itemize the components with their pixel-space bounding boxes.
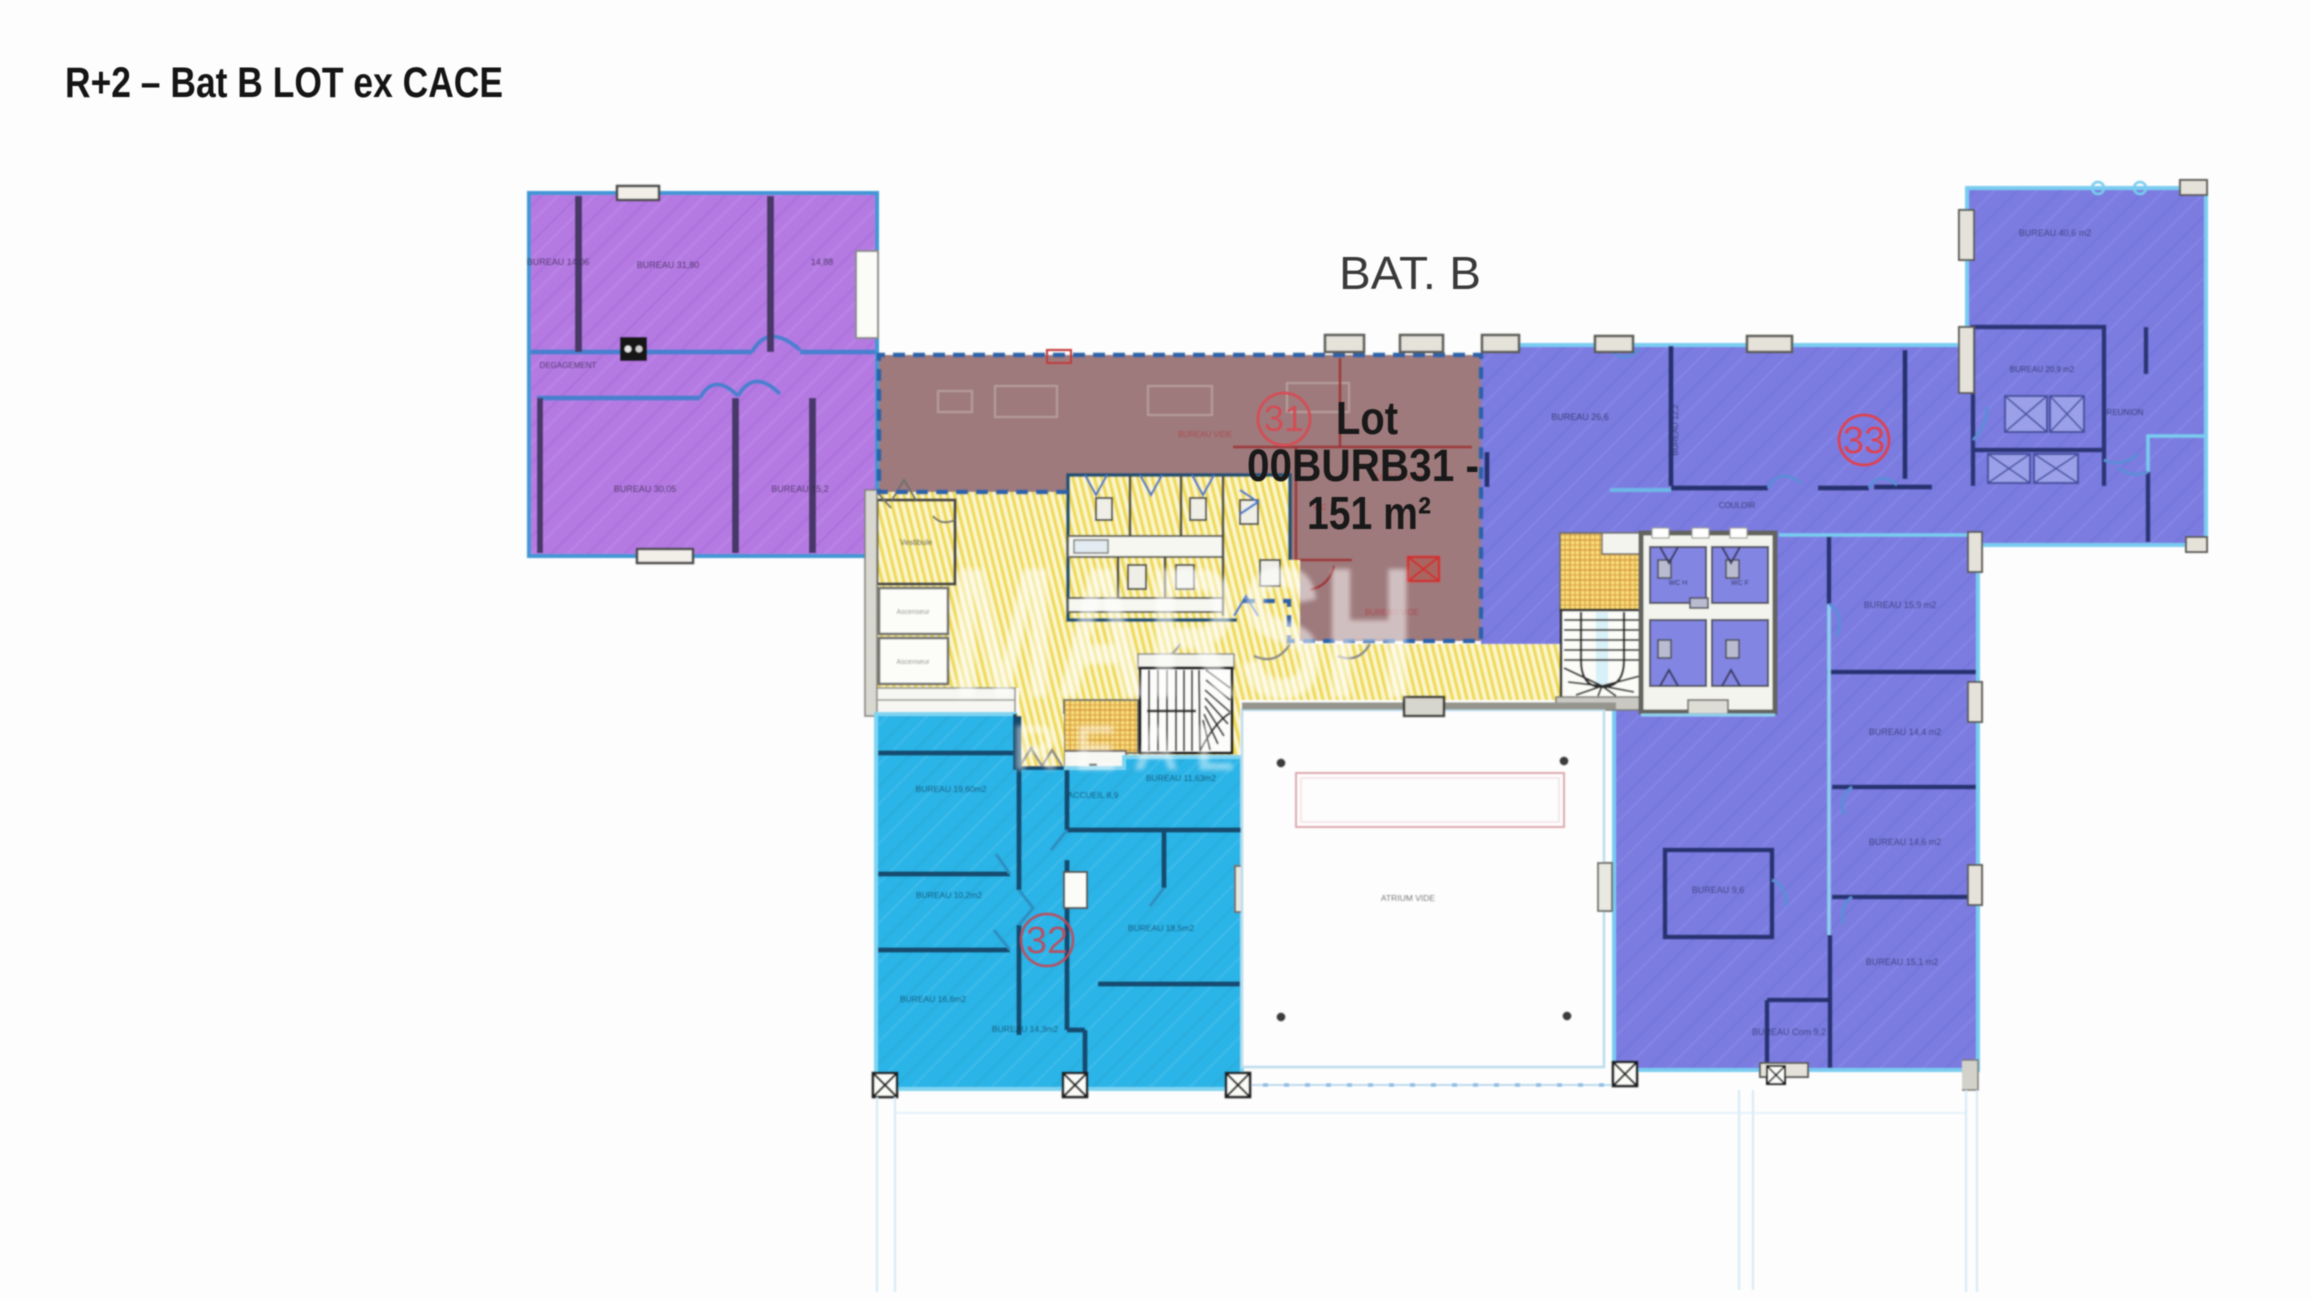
svg-text:33: 33: [1843, 420, 1885, 462]
svg-text:BUREAU 10,2m2: BUREAU 10,2m2: [916, 890, 982, 900]
svg-text:WC F: WC F: [1731, 580, 1749, 587]
svg-text:151 m²: 151 m²: [1307, 487, 1431, 539]
svg-text:BAT. B: BAT. B: [1339, 247, 1481, 299]
svg-text:WC H: WC H: [1669, 580, 1688, 587]
svg-text:BUREAU 20,9 m2: BUREAU 20,9 m2: [2010, 365, 2075, 374]
svg-text:31: 31: [1264, 398, 1304, 439]
svg-text:REAL: REAL: [1012, 712, 1250, 784]
svg-text:ATRIUM VIDE: ATRIUM VIDE: [1381, 893, 1435, 903]
svg-text:COULOIR: COULOIR: [1719, 501, 1756, 510]
svg-text:Ascenseur: Ascenseur: [896, 659, 930, 666]
svg-text:BUREAU 14,4 m2: BUREAU 14,4 m2: [1869, 727, 1942, 737]
svg-text:BUREAU 12,2: BUREAU 12,2: [1671, 404, 1680, 456]
svg-text:BUREAU 26,6: BUREAU 26,6: [1551, 412, 1609, 422]
svg-text:R+2 – Bat B LOT ex CACE: R+2 – Bat B LOT ex CACE: [65, 59, 503, 107]
svg-text:ACCUEIL 8,9: ACCUEIL 8,9: [1068, 790, 1119, 800]
svg-text:BUREAU Com 9,2: BUREAU Com 9,2: [1752, 1027, 1826, 1037]
svg-text:DEGAGEMENT: DEGAGEMENT: [540, 361, 597, 370]
svg-text:BUREAU 18,5m2: BUREAU 18,5m2: [1128, 923, 1194, 933]
svg-text:Lot: Lot: [1336, 392, 1398, 444]
svg-text:BUREAU 16,6m2: BUREAU 16,6m2: [900, 994, 966, 1004]
svg-text:Ascenseur: Ascenseur: [896, 609, 930, 616]
svg-text:Vestibule: Vestibule: [900, 538, 933, 547]
svg-text:REUNION: REUNION: [2107, 408, 2144, 417]
svg-text:BUREAU 14,3m2: BUREAU 14,3m2: [992, 1024, 1058, 1034]
svg-text:BUREAU 9,6: BUREAU 9,6: [1692, 885, 1745, 895]
svg-text:BUREAU VIDE: BUREAU VIDE: [1178, 430, 1232, 439]
svg-text:14,88: 14,88: [811, 257, 834, 267]
svg-text:BUREAU 15,9 m2: BUREAU 15,9 m2: [1864, 600, 1937, 610]
svg-text:BUREAU 19,60m2: BUREAU 19,60m2: [916, 784, 987, 794]
svg-text:32: 32: [1026, 920, 1068, 962]
svg-text:BUREAU 30,05: BUREAU 30,05: [614, 484, 677, 494]
svg-text:BUREAU 14,06: BUREAU 14,06: [527, 257, 590, 267]
svg-text:BUREAU 40,6 m2: BUREAU 40,6 m2: [2019, 228, 2092, 238]
svg-text:BUREAU 14,6 m2: BUREAU 14,6 m2: [1869, 837, 1942, 847]
svg-text:MARSH: MARSH: [950, 530, 1415, 737]
svg-text:BUREAU 31,80: BUREAU 31,80: [637, 260, 700, 270]
svg-text:BUREAU 15,2: BUREAU 15,2: [771, 484, 829, 494]
svg-text:00BURB31 -: 00BURB31 -: [1247, 440, 1479, 491]
svg-text:BUREAU 15,1 m2: BUREAU 15,1 m2: [1866, 957, 1939, 967]
